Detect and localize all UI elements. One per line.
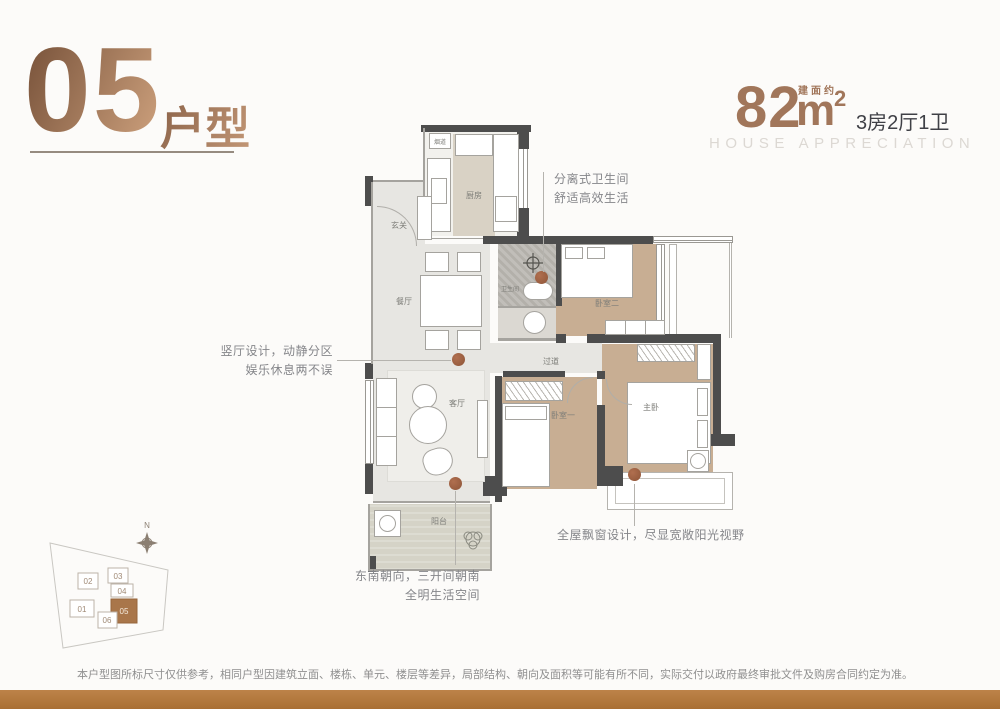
- bedroom1-label: 卧室一: [539, 410, 587, 421]
- wall: [503, 371, 565, 377]
- callout-dot-baywindow: [628, 468, 641, 481]
- wall: [365, 363, 373, 379]
- site-unit-02-label: 02: [84, 577, 93, 586]
- bathroom-label: 卫生间: [493, 284, 527, 293]
- wall-thin: [490, 504, 492, 570]
- leader-line-hall: [337, 360, 451, 361]
- area-unit: m: [796, 86, 835, 136]
- unit-number: 05: [24, 30, 161, 150]
- footer-bar: [0, 690, 1000, 709]
- pillow: [697, 420, 708, 448]
- site-unit-04-label: 04: [118, 587, 127, 596]
- wardrobe-divider: [645, 321, 646, 334]
- living-bay-window: [365, 380, 374, 464]
- callout-baywindow: 全屋飘窗设计，尽显宽敞阳光视野: [557, 526, 745, 545]
- leader-line-orientation: [455, 491, 456, 565]
- balcony-label: 阳台: [419, 516, 459, 527]
- dining-chair: [457, 330, 481, 350]
- shower-symbol-icon: [523, 253, 543, 273]
- room-count-label: 3房2厅1卫: [856, 106, 949, 135]
- dining-chair: [425, 330, 449, 350]
- bedroom2-label: 卧室二: [585, 298, 629, 309]
- coffee-table-large: [409, 406, 447, 444]
- compass-icon: [136, 532, 158, 554]
- brochure-page: 05 户型 82 建面约 m 2 3房2厅1卫 HOUSE APPRECIATI…: [0, 0, 1000, 709]
- wash-basin: [523, 311, 546, 334]
- corridor-label: 过道: [529, 356, 573, 367]
- wall-thin: [425, 238, 483, 239]
- kitchen-label: 厨房: [459, 190, 489, 201]
- site-unit-01-label: 01: [78, 605, 87, 614]
- dining-label: 餐厅: [387, 296, 421, 307]
- range-hood: [455, 134, 493, 156]
- entry-label: 玄关: [377, 220, 421, 231]
- wall: [421, 125, 531, 132]
- compass-n-label: N: [144, 521, 150, 530]
- pillow: [587, 247, 605, 259]
- wall-thin: [371, 182, 373, 364]
- house-appreciation-subtitle: HOUSE APPRECIATION: [709, 135, 975, 152]
- callout-bathroom-line1: 分离式卫生间: [554, 170, 629, 189]
- wall: [365, 464, 373, 494]
- dining-table: [420, 275, 482, 327]
- toilet: [523, 282, 553, 300]
- callout-orientation: 东南朝向，三开间朝南 全明生活空间: [290, 567, 480, 605]
- kitchen-sink: [431, 178, 447, 204]
- flue-label: 烟道: [427, 137, 453, 146]
- tv-bench: [477, 400, 488, 458]
- callout-baywindow-line1: 全屋飘窗设计，尽显宽敞阳光视野: [557, 526, 745, 545]
- wall: [713, 334, 721, 446]
- washing-machine-drum: [379, 515, 396, 532]
- callout-bathroom-line2: 舒适高效生活: [554, 189, 629, 208]
- wall-thin: [498, 306, 556, 308]
- dining-chair: [425, 252, 449, 272]
- site-boundary: [50, 543, 168, 648]
- wall: [556, 334, 566, 343]
- wall-thin: [498, 338, 556, 341]
- plant-icon: [460, 526, 486, 552]
- site-unit-06-label: 06: [103, 616, 112, 625]
- master-label: 主卧: [629, 402, 673, 413]
- bedroom1-wardrobe: [505, 381, 563, 401]
- dining-chair: [457, 252, 481, 272]
- living-label: 客厅: [437, 398, 477, 409]
- nightstand-lamp: [690, 453, 706, 469]
- wardrobe-row: [605, 320, 665, 335]
- right-outer-line: [729, 243, 732, 338]
- callout-bathroom: 分离式卫生间 舒适高效生活: [554, 170, 629, 208]
- callout-orientation-line1: 东南朝向，三开间朝南: [290, 567, 480, 586]
- callout-hall: 竖厅设计，动静分区 娱乐休息两不误: [150, 342, 333, 380]
- master-bay-window-inner: [615, 478, 725, 504]
- site-plan: N 02 03 04 01 05 06: [45, 516, 220, 668]
- header-underline: [30, 151, 234, 153]
- callout-dot-orientation: [449, 477, 462, 490]
- wall: [597, 405, 605, 475]
- leader-line-baywindow: [634, 484, 635, 526]
- sofa-divider: [377, 436, 396, 437]
- callout-hall-line2: 娱乐休息两不误: [150, 361, 333, 380]
- callout-hall-line1: 竖厅设计，动静分区: [150, 342, 333, 361]
- kitchen-stove: [495, 196, 517, 222]
- area-unit-superscript: 2: [834, 86, 846, 112]
- wall: [483, 236, 653, 244]
- entry-cabinet: [417, 196, 432, 240]
- site-unit-05-label: 05: [120, 607, 129, 616]
- disclaimer-text: 本户型图所标尺寸仅供参考，相同户型因建筑立面、楼栋、单元、楼层等差异，局部结构、…: [77, 666, 957, 682]
- wardrobe-divider: [625, 321, 626, 334]
- master-cabinet: [697, 344, 711, 380]
- pillow: [565, 247, 583, 259]
- wall: [587, 334, 713, 343]
- wall-thin: [373, 501, 490, 503]
- top-right-window: [653, 236, 733, 243]
- callout-dot-bathroom: [535, 271, 548, 284]
- wall-thin: [373, 180, 423, 182]
- leader-line-bathroom: [543, 172, 544, 272]
- callout-dot-hall: [452, 353, 465, 366]
- site-unit-03-label: 03: [114, 572, 123, 581]
- master-wardrobe: [637, 344, 695, 362]
- pillow: [697, 388, 708, 416]
- bedroom2-bay-outer: [669, 244, 677, 336]
- wall: [597, 371, 605, 379]
- sofa-divider: [377, 407, 396, 408]
- wall-thin: [368, 504, 370, 570]
- sofa: [376, 378, 397, 466]
- unit-type-label: 户型: [160, 92, 250, 157]
- callout-orientation-line2: 全明生活空间: [290, 586, 480, 605]
